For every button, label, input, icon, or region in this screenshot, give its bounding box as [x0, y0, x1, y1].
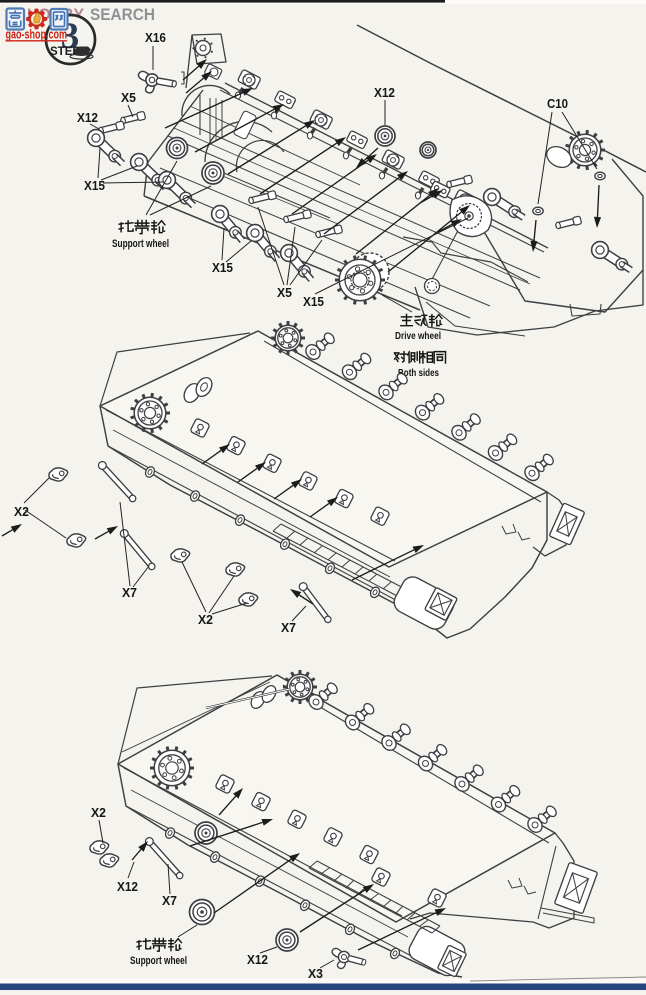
svg-text:X5: X5: [121, 91, 136, 105]
svg-text:X15: X15: [84, 179, 105, 193]
svg-text:SEARCH: SEARCH: [90, 6, 155, 24]
svg-text:X16: X16: [145, 31, 166, 45]
svg-text:Drive wheel: Drive wheel: [395, 330, 441, 342]
svg-text:gao-shop.com: gao-shop.com: [6, 27, 68, 42]
svg-text:X12: X12: [77, 111, 98, 125]
svg-text:X5: X5: [277, 286, 292, 300]
svg-text:C10: C10: [547, 97, 568, 111]
svg-text:X7: X7: [162, 894, 177, 908]
svg-text:X12: X12: [117, 880, 138, 894]
svg-text:Support wheel: Support wheel: [112, 238, 169, 250]
svg-text:X2: X2: [91, 806, 106, 820]
svg-text:X2: X2: [14, 505, 29, 519]
svg-text:X15: X15: [303, 295, 324, 309]
svg-text:Support wheel: Support wheel: [130, 955, 187, 967]
svg-text:X3: X3: [308, 967, 323, 981]
svg-text:X7: X7: [122, 586, 137, 600]
svg-text:X12: X12: [374, 86, 395, 100]
svg-text:X2: X2: [198, 613, 213, 627]
svg-text:X12: X12: [247, 953, 268, 967]
svg-text:X7: X7: [281, 621, 296, 635]
svg-text:X15: X15: [212, 261, 233, 275]
